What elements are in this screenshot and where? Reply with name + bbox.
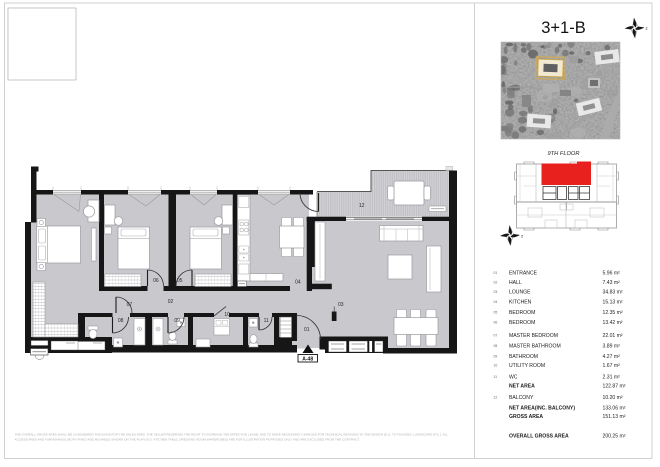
svg-text:9TH FLOOR: 9TH FLOOR [548, 151, 580, 157]
svg-text:MASTER BATHROOM: MASTER BATHROOM [509, 344, 561, 350]
svg-text:3.89 m²: 3.89 m² [603, 344, 621, 350]
svg-text:MASTER BEDROOM: MASTER BEDROOM [509, 333, 558, 339]
svg-text:THE OVERALL GROSS AREA SHALL B: THE OVERALL GROSS AREA SHALL BE CONSIDER… [15, 433, 449, 437]
svg-text:2.31 m²: 2.31 m² [603, 375, 621, 381]
svg-text:34.83 m²: 34.83 m² [603, 290, 623, 296]
svg-text:4.27 m²: 4.27 m² [603, 354, 621, 360]
svg-text:09: 09 [494, 355, 498, 359]
svg-text:04: 04 [295, 280, 301, 286]
svg-text:05: 05 [177, 278, 183, 284]
svg-text:01: 01 [304, 327, 310, 333]
svg-text:08: 08 [118, 318, 124, 324]
svg-text:02: 02 [494, 281, 498, 285]
svg-text:01: 01 [494, 271, 498, 275]
svg-text:09: 09 [174, 318, 180, 324]
svg-text:02: 02 [168, 299, 174, 305]
svg-text:03: 03 [494, 290, 498, 294]
svg-text:07: 07 [127, 302, 133, 308]
svg-text:ENTRANCE: ENTRANCE [509, 271, 538, 277]
svg-text:OVERALL GROSS AREA: OVERALL GROSS AREA [509, 434, 569, 440]
svg-text:11: 11 [494, 375, 498, 379]
svg-text:05: 05 [494, 311, 498, 315]
svg-text:GROSS AREA: GROSS AREA [509, 414, 543, 420]
svg-text:08: 08 [494, 344, 498, 348]
svg-text:ACCESSORIES AND FURNISHINGS (B: ACCESSORIES AND FURNISHINGS (BOTH FIXED … [15, 438, 360, 442]
svg-text:10: 10 [224, 312, 230, 318]
svg-text:12: 12 [494, 396, 498, 400]
svg-text:13.42 m²: 13.42 m² [603, 320, 623, 326]
svg-text:5.96 m²: 5.96 m² [603, 271, 621, 277]
svg-text:BEDROOM: BEDROOM [509, 320, 535, 326]
svg-text:A-48: A-48 [302, 357, 313, 363]
svg-text:06: 06 [494, 321, 498, 325]
svg-text:BALCONY: BALCONY [509, 395, 534, 401]
svg-text:200.25 m²: 200.25 m² [603, 434, 626, 440]
svg-text:03: 03 [338, 302, 344, 308]
svg-text:151.13 m²: 151.13 m² [603, 414, 626, 420]
svg-text:BATHROOM: BATHROOM [509, 354, 538, 360]
svg-text:06: 06 [153, 278, 159, 284]
svg-text:07: 07 [494, 334, 498, 338]
svg-text:KITCHEN: KITCHEN [509, 300, 532, 306]
svg-text:12.35 m²: 12.35 m² [603, 310, 623, 316]
svg-text:10: 10 [494, 364, 498, 368]
svg-text:22.01 m²: 22.01 m² [603, 333, 623, 339]
svg-text:10.20 m²: 10.20 m² [603, 395, 623, 401]
svg-text:BEDROOM: BEDROOM [509, 310, 535, 316]
svg-text:WC: WC [509, 375, 518, 381]
svg-text:3+1-B: 3+1-B [541, 19, 586, 37]
svg-text:LOUNGE: LOUNGE [509, 290, 531, 296]
svg-text:11: 11 [264, 318, 269, 324]
svg-text:12: 12 [359, 203, 365, 209]
svg-text:7.43 m²: 7.43 m² [603, 280, 621, 286]
svg-text:1.67 m²: 1.67 m² [603, 363, 621, 369]
svg-text:NET AREA(INC. BALCONY): NET AREA(INC. BALCONY) [509, 406, 575, 412]
svg-text:15.13 m²: 15.13 m² [603, 300, 623, 306]
svg-text:HALL: HALL [509, 280, 522, 286]
svg-text:NET AREA: NET AREA [509, 384, 535, 390]
svg-text:04: 04 [494, 300, 498, 304]
svg-text:122.87 m²: 122.87 m² [603, 384, 626, 390]
svg-text:UTILITY ROOM: UTILITY ROOM [509, 363, 545, 369]
svg-text:133.06 m²: 133.06 m² [603, 406, 626, 412]
